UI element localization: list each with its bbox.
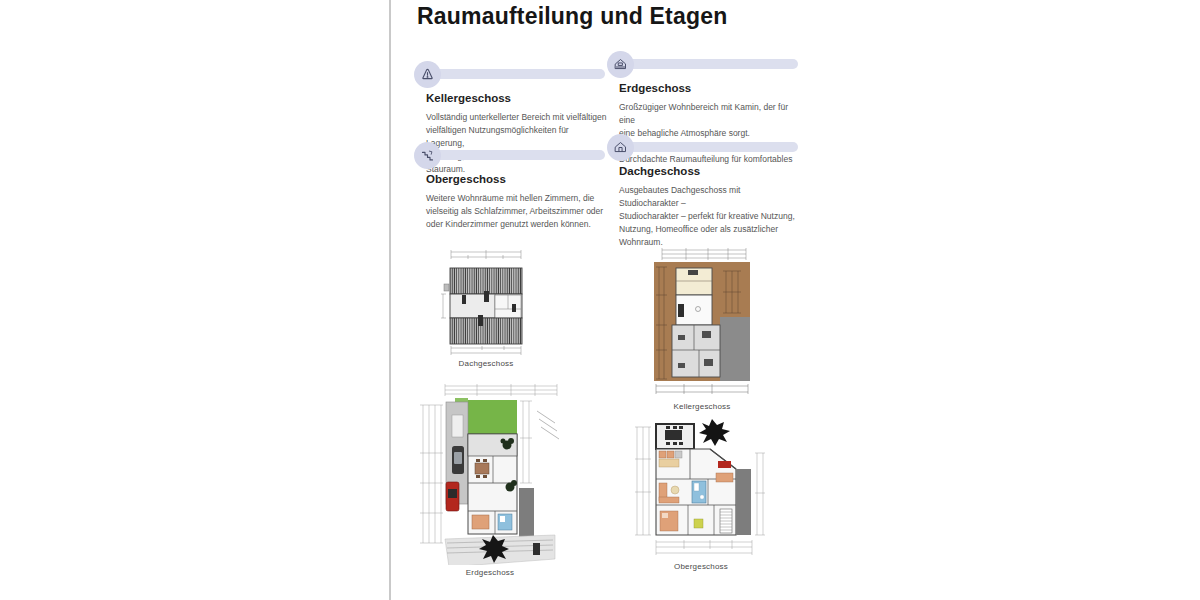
dachgeschoss-plan-drawing [438, 248, 534, 356]
accent-bar [422, 150, 605, 160]
page-title: Raumaufteilung und Etagen [417, 3, 727, 30]
section-erdgeschoss: Erdgeschoss Großzügiger Wohnbereich mit … [607, 51, 798, 147]
accent-bar [615, 59, 798, 69]
kellergeschoss-plan-drawing [646, 247, 758, 399]
plan-label: Erdgeschoss [415, 568, 565, 577]
obergeschoss-plan-drawing [632, 417, 770, 559]
alert-triangle-icon [414, 61, 441, 88]
page-divider [389, 0, 391, 600]
section-title: Obergeschoss [426, 173, 506, 185]
plan-label: Obergeschoss [632, 562, 770, 571]
plan-label: Dachgeschoss [438, 359, 534, 368]
section-obergeschoss: Obergeschoss Weitere Wohnräume mit helle… [414, 142, 605, 238]
floorplan-dachgeschoss: Dachgeschoss [438, 248, 534, 368]
plan-label: Kellergeschoss [646, 402, 758, 411]
section-body: Weitere Wohnräume mit hellen Zimmern, di… [426, 192, 607, 231]
section-title: Dachgeschoss [619, 165, 700, 177]
accent-bar [615, 142, 798, 152]
floorplan-erdgeschoss: Erdgeschoss [415, 383, 565, 577]
section-title: Kellergeschoss [426, 92, 511, 104]
section-dachgeschoss: Dachgeschoss Ausgebautes Dachgeschoss mi… [607, 134, 798, 230]
section-title: Erdgeschoss [619, 82, 691, 94]
floorplan-obergeschoss: Obergeschoss [632, 417, 770, 571]
section-body: Ausgebautes Dachgeschoss mit Studiochara… [619, 184, 800, 249]
house-icon [607, 51, 634, 78]
accent-bar [422, 69, 605, 79]
page: Raumaufteilung und Etagen Kellergeschoss… [0, 0, 1200, 600]
house-door-icon [607, 134, 634, 161]
floorplan-kellergeschoss: Kellergeschoss [646, 247, 758, 411]
stairs-icon [414, 142, 441, 169]
erdgeschoss-plan-drawing [415, 383, 565, 565]
